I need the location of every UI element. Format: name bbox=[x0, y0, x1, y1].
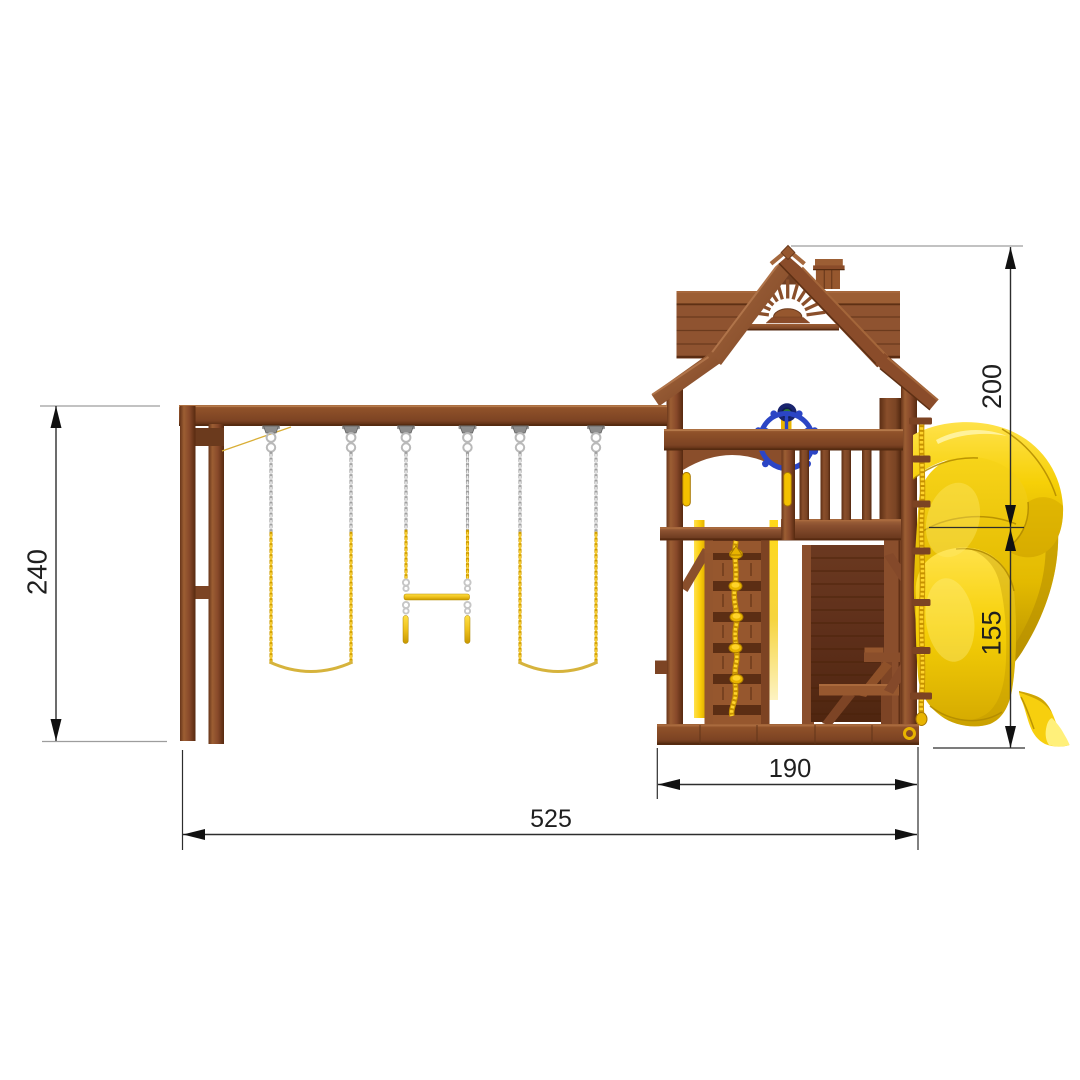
svg-text:525: 525 bbox=[530, 805, 572, 833]
svg-text:190: 190 bbox=[769, 755, 812, 783]
svg-text:155: 155 bbox=[977, 610, 1007, 655]
svg-text:240: 240 bbox=[22, 549, 53, 595]
svg-text:200: 200 bbox=[977, 364, 1007, 409]
